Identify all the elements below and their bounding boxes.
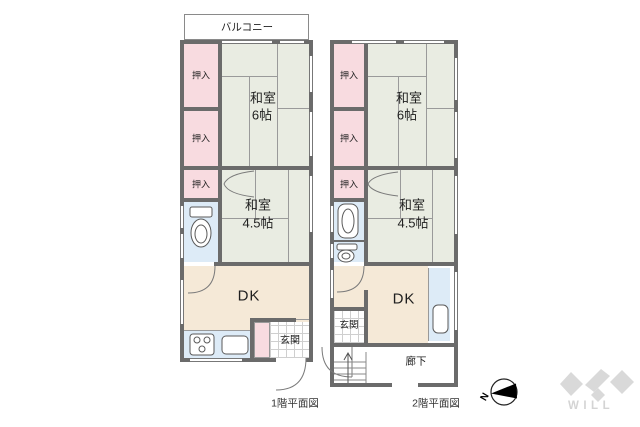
wall-segment [364, 290, 368, 343]
window-symbol [180, 280, 184, 324]
window-symbol [330, 206, 334, 232]
f2-genkan-label: 玄関 [339, 317, 358, 331]
wall-segment [334, 198, 368, 202]
plan-symbols-layer: N WILL [0, 0, 640, 427]
f2-caption: 2階平面図 [412, 396, 460, 411]
wall-segment [364, 44, 368, 262]
window-symbol [454, 112, 458, 158]
f1-closet-low-label: 押入 [192, 178, 210, 191]
door-opening [184, 262, 214, 266]
f2-outer-wall [330, 40, 458, 387]
window-symbol [352, 40, 396, 44]
logo-diamond [585, 369, 610, 392]
compass-icon: N [479, 379, 517, 405]
window-symbol [454, 272, 458, 330]
wall-segment [334, 240, 364, 242]
window-symbol [190, 358, 242, 362]
f1-dk-label: DK [238, 288, 261, 305]
logo-diamond [591, 388, 605, 402]
window-symbol [180, 206, 184, 228]
door-arc [276, 358, 306, 390]
window-symbol [309, 176, 313, 232]
window-symbol [330, 244, 334, 258]
window-symbol [330, 270, 334, 298]
f2-washitsu45-size: 4.5帖 [397, 213, 428, 232]
wall-segment [334, 107, 368, 111]
window-symbol [309, 56, 313, 92]
f1-closet-top-label: 押入 [192, 69, 210, 82]
door-opening [337, 262, 364, 266]
f1-washitsu45-size: 4.5帖 [242, 213, 273, 232]
f1-washitsu6-size: 6帖 [252, 105, 272, 124]
floor-plan-canvas: バルコニー 押入 押入 押入 和室 6帖 和室 4.5帖 DK 玄関 1階平面図 [0, 0, 640, 427]
f1-washitsu45-name: 和室 [245, 195, 271, 214]
f2-washitsu6-size: 6帖 [397, 105, 417, 124]
logo-diamond [560, 372, 583, 396]
logo-diamond [610, 370, 634, 394]
f1-genkan-label: 玄関 [280, 332, 300, 347]
door-opening [392, 383, 418, 387]
f1-shoe-cabinet [254, 322, 270, 358]
f2-washitsu45-name: 和室 [399, 195, 425, 214]
f1-balcony-label: バルコニー [221, 20, 273, 35]
window-symbol [280, 40, 304, 44]
logo-text: WILL [568, 400, 614, 412]
f2-closet-low-label: 押入 [340, 178, 358, 191]
f2-corridor-label: 廊下 [406, 354, 427, 369]
f2-dk-label: DK [393, 291, 416, 308]
wall-segment [184, 198, 222, 202]
wall-segment [334, 166, 454, 170]
f2-closet-mid-label: 押入 [340, 132, 358, 145]
door-opening [276, 358, 306, 362]
f2-closet-top-label: 押入 [340, 69, 358, 82]
window-symbol [404, 40, 444, 44]
window-symbol [454, 176, 458, 234]
window-symbol [222, 40, 272, 44]
f1-caption: 1階平面図 [271, 396, 319, 411]
wall-segment [184, 166, 309, 170]
window-symbol [454, 58, 458, 100]
wall-segment [334, 307, 364, 311]
wall-segment [334, 343, 454, 347]
wall-segment [214, 262, 309, 266]
wall-segment [364, 262, 454, 266]
window-symbol [180, 234, 184, 258]
wall-segment [218, 44, 222, 262]
wall-segment [184, 107, 222, 111]
f1-closet-mid-label: 押入 [192, 132, 210, 145]
will-logo: WILL [560, 369, 634, 412]
window-symbol [309, 112, 313, 156]
compass-north-label: N [479, 391, 492, 403]
